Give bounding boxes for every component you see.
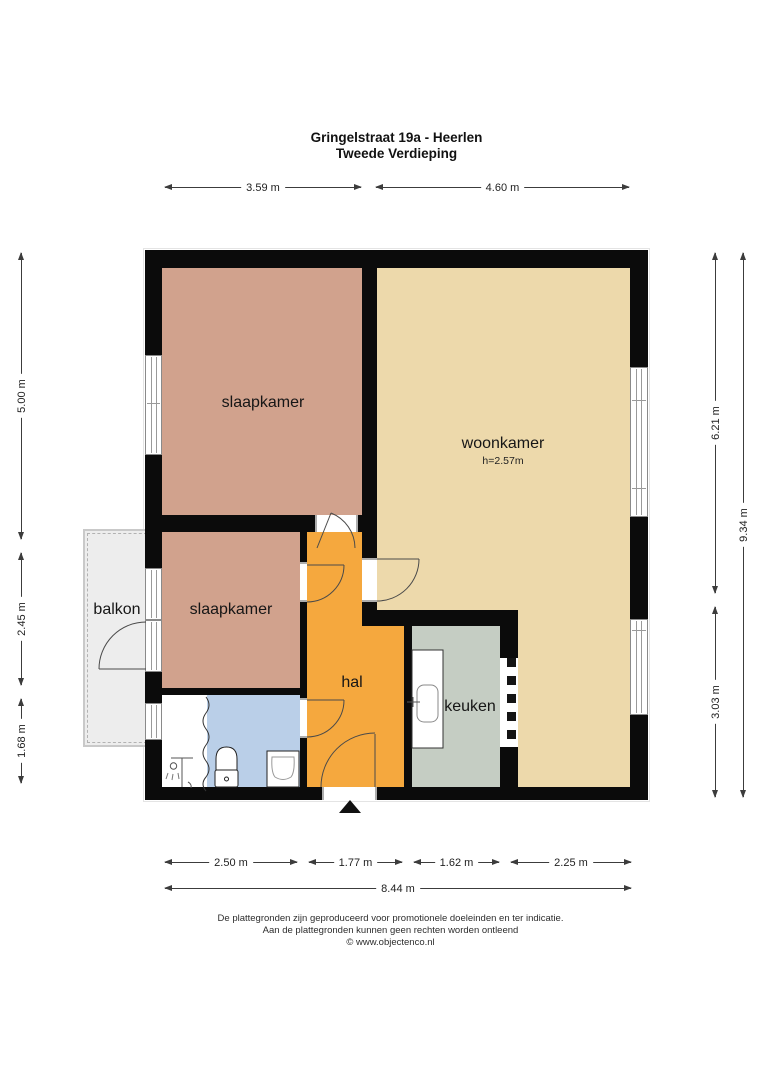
wall <box>362 532 377 558</box>
door-opening-woonkamer <box>362 558 377 602</box>
balcony-door-opening <box>145 620 162 672</box>
window-badkamer <box>145 703 162 740</box>
wall <box>300 738 307 787</box>
dim-right-2: 3.03 m <box>709 606 722 798</box>
dim-right-1: 6.21 m <box>709 252 722 594</box>
dim-left-3: 1.68 m <box>15 698 28 784</box>
wall <box>630 715 648 800</box>
title-floor: Tweede Verdieping <box>145 146 648 162</box>
wall <box>300 532 307 562</box>
wall <box>145 250 648 268</box>
footer-disclaimer: De plattegronden zijn geproduceerd voor … <box>0 913 763 949</box>
dim-bottom-4: 2.25 m <box>510 856 632 869</box>
label-hal: hal <box>341 674 362 692</box>
wall <box>145 250 162 355</box>
room-hal-wide <box>362 626 404 787</box>
wall <box>162 515 315 532</box>
wall <box>145 672 162 703</box>
dim-bottom-2: 1.77 m <box>308 856 403 869</box>
floorplan-page: Gringelstraat 19a - Heerlen Tweede Verdi… <box>0 0 763 1080</box>
wall <box>145 787 322 800</box>
window-slaapkamer2 <box>145 568 162 620</box>
footer-line-1: De plattegronden zijn geproduceerd voor … <box>0 913 763 925</box>
footer-line-3: © www.objectenco.nl <box>0 937 763 949</box>
page-title: Gringelstraat 19a - Heerlen Tweede Verdi… <box>145 130 648 162</box>
wall <box>500 626 518 658</box>
dim-top-1: 3.59 m <box>164 181 362 194</box>
label-slaapkamer-2: slaapkamer <box>190 601 273 619</box>
room-balkon <box>83 529 147 747</box>
room-badkamer <box>207 695 300 787</box>
dim-top-2: 4.60 m <box>375 181 630 194</box>
room-hal-narrow <box>307 532 362 787</box>
wall <box>162 688 300 695</box>
wall <box>362 610 518 626</box>
footer-line-2: Aan de plattegronden kunnen geen rechten… <box>0 925 763 937</box>
label-woonkamer: woonkamer <box>462 435 545 453</box>
title-address: Gringelstraat 19a - Heerlen <box>145 130 648 146</box>
window-woonkamer-2 <box>630 619 648 715</box>
wall <box>377 787 648 800</box>
wall <box>500 747 518 787</box>
room-shower-area <box>162 695 207 787</box>
wall <box>145 740 162 800</box>
label-keuken: keuken <box>444 698 496 716</box>
door-opening-slaapkamer1 <box>315 515 358 532</box>
dim-bottom-3: 1.62 m <box>413 856 500 869</box>
door-opening-slaapkamer2 <box>300 562 307 602</box>
dim-left-2: 2.45 m <box>15 552 28 686</box>
window-slaapkamer1 <box>145 355 162 455</box>
door-opening-badkamer <box>300 698 307 738</box>
room-woonkamer-lower <box>518 610 630 787</box>
dim-bottom-total: 8.44 m <box>164 882 632 895</box>
window-woonkamer-1 <box>630 367 648 517</box>
wall <box>630 517 648 619</box>
wall <box>404 626 412 787</box>
wall <box>145 455 162 568</box>
front-door-opening <box>322 787 377 800</box>
north-arrow-icon <box>339 800 361 813</box>
label-woonkamer-height: h=2.57m <box>482 455 523 467</box>
label-slaapkamer-1: slaapkamer <box>222 394 305 412</box>
label-balkon: balkon <box>93 601 140 619</box>
wall <box>358 515 377 532</box>
kitchen-pass-through-opening <box>500 658 518 747</box>
dim-right-total: 9.34 m <box>737 252 750 798</box>
room-slaapkamer-1 <box>162 268 362 515</box>
dim-bottom-1: 2.50 m <box>164 856 298 869</box>
balcony-railing <box>87 533 147 743</box>
wall <box>362 268 377 532</box>
wall <box>630 250 648 367</box>
wall <box>300 602 307 698</box>
dim-left-1: 5.00 m <box>15 252 28 540</box>
